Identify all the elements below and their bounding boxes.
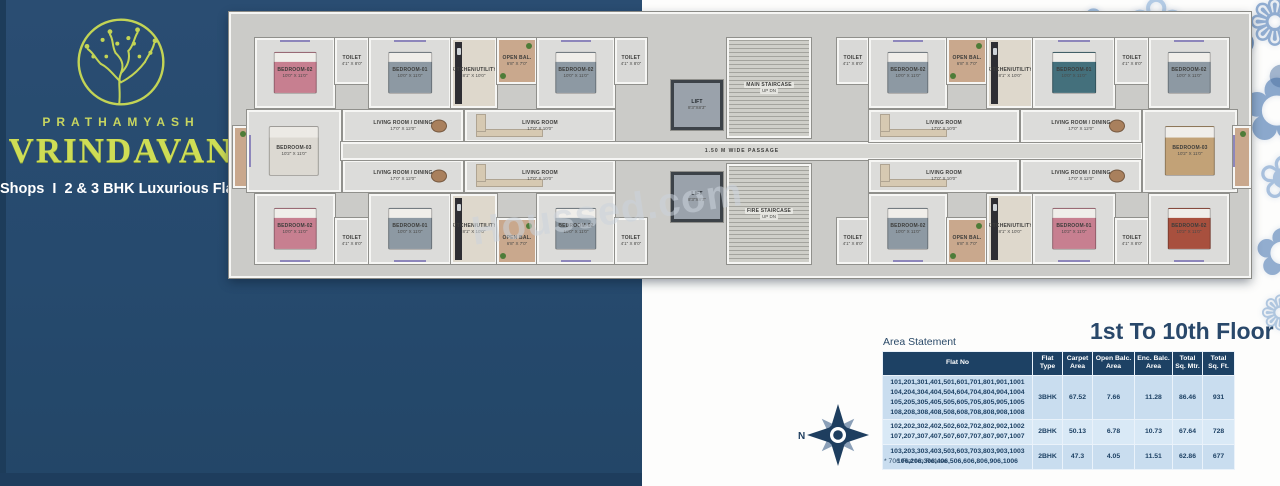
table-row: 101,201,301,401,501,601,701,801,901,1001… [883, 375, 1235, 419]
room-dimensions: 10'2" X 11'0" [281, 151, 306, 156]
room-dimensions: 17'0" X 12'0" [390, 176, 415, 181]
room-dimensions: 17'0" X 12'0" [1068, 126, 1093, 131]
plan-room-open-bal-: OPEN BAL.6'8" X 7'0" [947, 218, 987, 264]
table-cell: 728 [1203, 420, 1235, 445]
room-dimensions: 10'0" X 11'0" [1176, 73, 1201, 78]
window-sill [280, 38, 310, 42]
room-dimensions: 6'8" X 7'0" [957, 241, 977, 246]
table-column-header: Open Balc. Area [1093, 352, 1135, 376]
table-cell: 2BHK [1033, 420, 1063, 445]
room-dimensions: 8'1" X 10'0" [999, 229, 1022, 234]
table-cell: 2BHK [1033, 445, 1063, 470]
plan-room-bedroom-02: BEDROOM-0210'0" X 11'0" [255, 38, 335, 108]
room-label: 1.50 M WIDE PASSAGE [705, 148, 779, 154]
room-dimensions: 8'1" X 10'0" [999, 73, 1022, 78]
plan-room-living-room: LIVING ROOM17'0" X 10'0" [465, 160, 615, 192]
plan-room-bedroom-03: BEDROOM-0310'2" X 11'0" [247, 110, 341, 192]
dining-furniture [431, 170, 447, 183]
room-dimensions: 10'2" X 11'0" [1061, 229, 1086, 234]
plan-room-living-room-dining: LIVING ROOM / DINING17'0" X 12'0" [343, 110, 463, 142]
plan-room-toilet: TOILET4'1" X 8'0" [335, 38, 369, 84]
plan-room-toilet: TOILET4'1" X 8'0" [615, 38, 647, 84]
room-dimensions: 10'0" X 11'0" [282, 229, 307, 234]
area-statement-label: Area Statement [883, 336, 956, 348]
table-column-header: Carpet Area [1063, 352, 1093, 376]
window-sill [1058, 38, 1089, 42]
flower-icon: ❀ [1258, 148, 1280, 208]
room-dimensions: 17'0" X 10'0" [931, 126, 956, 131]
dining-furniture [431, 120, 447, 133]
brand-name-main: VRINDAVAN [0, 131, 242, 171]
room-dimensions: 4'1" X 8'0" [1122, 241, 1142, 246]
plan-room-lift: LIFT8'3"X8'3" [671, 80, 723, 130]
plan-room-kitchen-utility: KITCHEN/UTILITY8'1" X 10'0" [987, 194, 1033, 264]
tree-logo-icon [75, 16, 167, 108]
window-sill [394, 38, 425, 42]
plan-room-bedroom-01: BEDROOM-0110'0" X 11'0" [1033, 38, 1115, 108]
plan-room-bedroom-02: BEDROOM-0210'0" X 11'0" [255, 194, 335, 264]
window-sill [394, 260, 425, 264]
plan-room-living-room-dining: LIVING ROOM / DINING17'0" X 12'0" [1021, 160, 1141, 192]
room-dimensions: 4'1" X 8'0" [342, 241, 362, 246]
table-column-header: Total Sq. Ft. [1203, 352, 1235, 376]
plan-room-living-room-dining: LIVING ROOM / DINING17'0" X 12'0" [343, 160, 463, 192]
dining-furniture [1109, 120, 1125, 133]
flower-icon: ✿ [1254, 220, 1280, 286]
table-column-header: Total Sq. Mtr. [1173, 352, 1203, 376]
brand-name-top: PRATHAMYASH [0, 115, 242, 129]
plan-room-living-room-dining: LIVING ROOM / DINING17'0" X 12'0" [1021, 110, 1141, 142]
plan-room-bedroom-01: BEDROOM-0110'0" X 11'0" [369, 194, 451, 264]
room-dimensions: 17'0" X 12'0" [390, 126, 415, 131]
room-dimensions: 6'8" X 7'0" [507, 61, 527, 66]
table-cell: 3BHK [1033, 375, 1063, 419]
plan-room-bedroom-02: BEDROOM-0210'0" X 11'0" [869, 38, 947, 108]
area-statement-table: Flat NoFlat TypeCarpet AreaOpen Balc. Ar… [882, 351, 1235, 470]
plan-room-toilet: TOILET4'1" X 8'0" [335, 218, 369, 264]
flat-numbers-cell: 103,203,303,403,503,603,703,803,903,1003… [883, 445, 1033, 470]
room-dimensions: 8'1" X 10'0" [463, 73, 486, 78]
room-dimensions: 10'2" X 11'0" [1176, 229, 1201, 234]
plan-room-bedroom-02: BEDROOM-0210'0" X 11'0" [1149, 38, 1229, 108]
plan-room-main-staircase: MAIN STAIRCASEUP DN [727, 38, 811, 138]
room-dimensions: 10'0" X 11'0" [563, 73, 588, 78]
room-dimensions: 17'0" X 10'0" [931, 176, 956, 181]
room-dimensions: 17'0" X 10'0" [527, 126, 552, 131]
plan-room-bedroom-02: BEDROOM-0210'0" X 11'0" [869, 194, 947, 264]
plan-room-living-room: LIVING ROOM17'0" X 10'0" [869, 110, 1019, 142]
room-dimensions: 4'1" X 8'0" [843, 61, 863, 66]
plan-room-kitchen-utility: KITCHEN/UTILITY8'1" X 10'0" [987, 38, 1033, 108]
room-dimensions: 10'0" X 11'0" [1061, 73, 1086, 78]
room-dimensions: 4'1" X 8'0" [1122, 61, 1142, 66]
room-dimensions: 4'1" X 8'0" [843, 241, 863, 246]
brand-tagline: Shops I 2 & 3 BHK Luxurious Flats [0, 181, 242, 197]
room-dimensions: 10'0" X 11'0" [895, 73, 920, 78]
table-column-header: Flat Type [1033, 352, 1063, 376]
window-sill [893, 260, 923, 264]
room-dimensions: UP DN [760, 88, 778, 93]
brand-block: PRATHAMYASH VRINDAVAN Shops I 2 & 3 BHK … [0, 0, 242, 197]
room-dimensions: 17'0" X 12'0" [1068, 176, 1093, 181]
window-sill [1058, 260, 1089, 264]
plan-room-balcony [1233, 126, 1251, 188]
table-cell: 6.78 [1093, 420, 1135, 445]
room-dimensions: 17'0" X 10'0" [527, 176, 552, 181]
flat-numbers-cell: 101,201,301,401,501,601,701,801,901,1001… [883, 375, 1033, 419]
room-dimensions: 10'0" X 11'0" [282, 73, 307, 78]
table-row: 103,203,303,403,503,603,703,803,903,1003… [883, 445, 1235, 470]
compass-north-label: N [798, 431, 805, 442]
plan-room-toilet: TOILET4'1" X 8'0" [837, 38, 869, 84]
table-row: 102,202,302,402,502,602,702,802,902,1002… [883, 420, 1235, 445]
table-cell: 4.05 [1093, 445, 1135, 470]
plan-room-open-bal-: OPEN BAL.6'8" X 7'0" [497, 38, 537, 84]
window-sill [561, 38, 591, 42]
room-dimensions: 10'0" X 11'0" [397, 229, 422, 234]
window-sill [561, 260, 591, 264]
window-sill [893, 38, 923, 42]
table-column-header: Flat No [883, 352, 1033, 376]
room-dimensions: 4'1" X 8'0" [621, 61, 641, 66]
flower-icon: ❁ [1248, 0, 1280, 56]
table-cell: 62.86 [1173, 445, 1203, 470]
plan-room-living-room: LIVING ROOM17'0" X 10'0" [869, 160, 1019, 192]
table-cell: 677 [1203, 445, 1235, 470]
table-cell: 931 [1203, 375, 1235, 419]
table-cell: 50.13 [1063, 420, 1093, 445]
flower-icon: ● [1268, 60, 1280, 90]
room-dimensions: 4'1" X 8'0" [342, 61, 362, 66]
room-dimensions: 6'8" X 7'0" [957, 61, 977, 66]
dining-furniture [1109, 170, 1125, 183]
plan-room-bedroom-01: BEDROOM-0110'0" X 11'0" [369, 38, 451, 108]
table-cell: 67.64 [1173, 420, 1203, 445]
plan-room-bedroom-01: BEDROOM-0110'2" X 11'0" [1033, 194, 1115, 264]
table-cell: 11.51 [1135, 445, 1173, 470]
table-cell: 86.46 [1173, 375, 1203, 419]
room-dimensions: 4'1" X 8'0" [621, 241, 641, 246]
brand-panel-footer-strip [0, 473, 642, 486]
window-sill [280, 260, 310, 264]
plan-room-toilet: TOILET4'1" X 8'0" [837, 218, 869, 264]
room-dimensions: 10'0" X 11'0" [397, 73, 422, 78]
plan-room-living-room: LIVING ROOM17'0" X 10'0" [465, 110, 615, 142]
floor-title: 1st To 10th Floor [1090, 318, 1240, 345]
plan-room-toilet: TOILET4'1" X 8'0" [1115, 218, 1149, 264]
table-column-header: Enc. Balc. Area [1135, 352, 1173, 376]
compass-icon: N [794, 400, 872, 470]
plan-room-toilet: TOILET4'1" X 8'0" [1115, 38, 1149, 84]
plan-room-bedroom-02: BEDROOM-0210'2" X 11'0" [1149, 194, 1229, 264]
room-dimensions: 10'2" X 11'0" [1177, 151, 1202, 156]
plan-room-1-50-m-wide-passage: 1.50 M WIDE PASSAGE [341, 142, 1143, 160]
window-sill [1174, 38, 1204, 42]
room-dimensions: 8'3"X8'3" [688, 105, 706, 110]
window-sill [247, 135, 251, 166]
plan-room-bedroom-03: BEDROOM-0310'2" X 11'0" [1143, 110, 1237, 192]
room-dimensions: UP DN [760, 214, 778, 219]
plan-room-bedroom-02: BEDROOM-0210'0" X 11'0" [537, 38, 615, 108]
table-cell: 10.73 [1135, 420, 1173, 445]
table-cell: 11.28 [1135, 375, 1173, 419]
plan-room-open-bal-: OPEN BAL.6'8" X 7'0" [947, 38, 987, 84]
floor-plan: BEDROOM-0210'0" X 11'0"TOILET4'1" X 8'0"… [229, 12, 1251, 278]
plan-room-kitchen-utility: KITCHEN/UTILITY8'1" X 10'0" [451, 38, 497, 108]
brochure-canvas: PRATHAMYASH VRINDAVAN Shops I 2 & 3 BHK … [0, 0, 1280, 486]
table-footnote: * 706 Flat No Refuse [884, 458, 947, 465]
table-cell: 47.3 [1063, 445, 1093, 470]
window-sill [1174, 260, 1204, 264]
room-dimensions: 10'0" X 11'0" [895, 229, 920, 234]
flat-numbers-cell: 102,202,302,402,502,602,702,802,902,1002… [883, 420, 1033, 445]
table-cell: 67.52 [1063, 375, 1093, 419]
table-cell: 7.66 [1093, 375, 1135, 419]
table-header-row: Flat NoFlat TypeCarpet AreaOpen Balc. Ar… [883, 352, 1235, 376]
